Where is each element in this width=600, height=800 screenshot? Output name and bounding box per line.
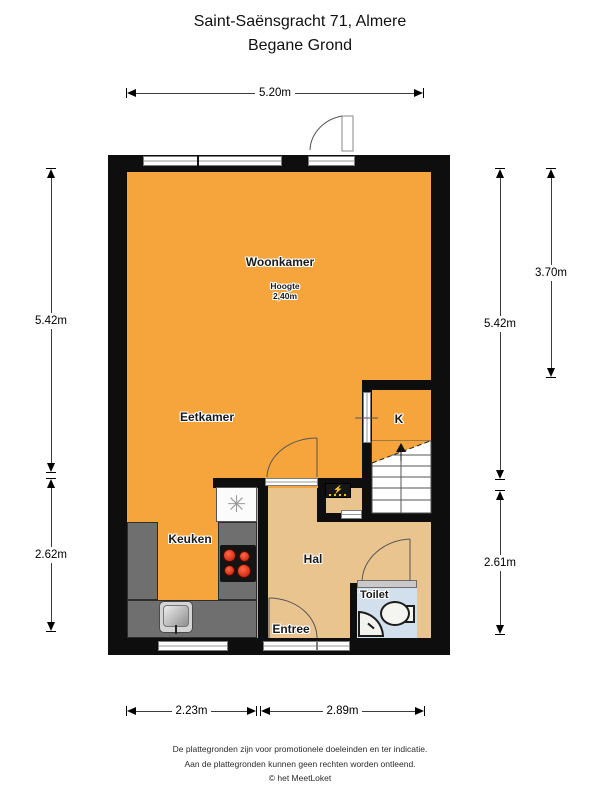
dim-label: 5.42m bbox=[484, 316, 516, 332]
dimension-left-lower: 2.62m bbox=[29, 478, 73, 632]
disclaimer-line1: De plattegronden zijn voor promotionele … bbox=[0, 742, 600, 757]
arrow-left-icon bbox=[127, 707, 136, 715]
arrow-up-icon bbox=[496, 491, 504, 500]
dim-tick bbox=[495, 634, 505, 635]
room-label-woonkamer: Woonkamer bbox=[246, 255, 314, 269]
dimension-bottom-right: 2.89m bbox=[260, 704, 425, 718]
dim-line bbox=[500, 178, 501, 316]
dim-tick bbox=[46, 631, 56, 632]
arrow-left-icon bbox=[127, 89, 136, 97]
dim-line bbox=[500, 500, 501, 555]
room-label-hal: Hal bbox=[304, 552, 323, 566]
dim-line bbox=[551, 281, 552, 368]
dim-label: 2.89m bbox=[323, 705, 363, 717]
dim-line bbox=[500, 332, 501, 470]
dimension-bottom-left: 2.23m bbox=[126, 704, 257, 718]
hall-door-swing-arc bbox=[267, 438, 317, 477]
ceiling-height-label: Hoogte bbox=[270, 281, 299, 291]
room-label-toilet: Toilet bbox=[360, 589, 389, 601]
dim-label: 5.42m bbox=[35, 313, 67, 329]
arrow-left-icon bbox=[261, 707, 270, 715]
arrow-down-icon bbox=[496, 625, 504, 634]
arrow-right-icon bbox=[247, 707, 256, 715]
room-label-eetkamer: Eetkamer bbox=[180, 410, 234, 424]
dim-line bbox=[500, 571, 501, 626]
arrow-up-icon bbox=[47, 479, 55, 488]
page-title: Saint-Saënsgracht 71, Almere bbox=[0, 13, 600, 31]
dim-tick bbox=[256, 706, 257, 716]
dim-tick bbox=[423, 88, 424, 98]
dim-line bbox=[211, 711, 247, 712]
dim-line bbox=[136, 93, 255, 94]
dim-line bbox=[51, 329, 52, 464]
ceiling-height-note: Hoogte 2,40m bbox=[270, 281, 299, 301]
plan-linework bbox=[108, 105, 450, 655]
room-label-entree: Entree bbox=[272, 622, 309, 636]
arrow-right-icon bbox=[415, 707, 424, 715]
dim-tick bbox=[546, 377, 556, 378]
dim-line bbox=[136, 711, 172, 712]
dim-label: 2.61m bbox=[484, 555, 516, 571]
arrow-down-icon bbox=[547, 368, 555, 377]
dimension-top: 5.20m bbox=[126, 86, 424, 100]
dim-tick bbox=[46, 472, 56, 473]
floorplan-page: Saint-Saënsgracht 71, Almere Begane Gron… bbox=[0, 0, 600, 800]
dim-line bbox=[51, 488, 52, 547]
ceiling-height-value: 2,40m bbox=[270, 291, 299, 301]
dimension-right-inner-lower: 2.61m bbox=[478, 490, 522, 635]
dimension-left-upper: 5.42m bbox=[29, 168, 73, 473]
dim-line bbox=[362, 711, 415, 712]
dim-line bbox=[51, 563, 52, 622]
page-subtitle: Begane Grond bbox=[0, 37, 600, 55]
copyright: © het MeetLoket bbox=[0, 771, 600, 786]
dim-line bbox=[295, 93, 414, 94]
arrow-right-icon bbox=[414, 89, 423, 97]
arrow-down-icon bbox=[47, 463, 55, 472]
arrow-up-icon bbox=[547, 169, 555, 178]
back-door-swing-arc bbox=[310, 116, 342, 150]
arrow-up-icon bbox=[496, 169, 504, 178]
toilet-door-swing-arc bbox=[362, 539, 410, 581]
dim-label: 3.70m bbox=[535, 265, 567, 281]
dim-tick bbox=[495, 479, 505, 480]
room-label-keuken: Keuken bbox=[168, 532, 211, 546]
dim-line bbox=[551, 178, 552, 265]
floorplan: ✳ ⚡ bbox=[108, 155, 450, 655]
arrow-down-icon bbox=[47, 622, 55, 631]
dim-label: 2.23m bbox=[172, 705, 212, 717]
disclaimer-line2: Aan de plattegronden kunnen geen rechten… bbox=[0, 757, 600, 772]
dim-label: 2.62m bbox=[35, 547, 67, 563]
arrow-up-icon bbox=[47, 169, 55, 178]
back-door-leaf bbox=[342, 116, 353, 151]
dim-tick bbox=[424, 706, 425, 716]
dim-line bbox=[270, 711, 323, 712]
dim-line bbox=[51, 178, 52, 313]
disclaimer: De plattegronden zijn voor promotionele … bbox=[0, 742, 600, 786]
dim-label: 5.20m bbox=[255, 87, 295, 99]
room-label-kast: K bbox=[395, 412, 404, 426]
dimension-right-outer: 3.70m bbox=[529, 168, 573, 378]
dimension-right-inner-upper: 5.42m bbox=[478, 168, 522, 480]
arrow-down-icon bbox=[496, 470, 504, 479]
